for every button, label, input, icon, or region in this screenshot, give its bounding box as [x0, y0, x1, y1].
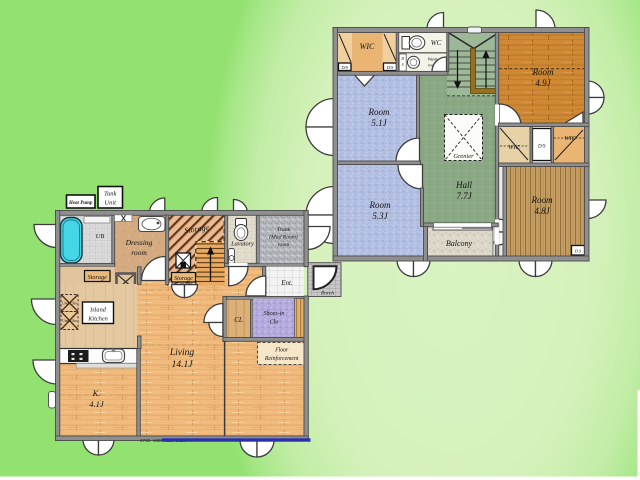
svg-text:4.1J: 4.1J [89, 399, 105, 409]
svg-text:14.1J: 14.1J [172, 360, 194, 370]
svg-text:Shoes-in: Shoes-in [264, 311, 285, 317]
svg-text:Reinforcement: Reinforcement [264, 355, 299, 362]
svg-text:Living: Living [169, 348, 195, 358]
svg-text:7.7J: 7.7J [456, 191, 472, 201]
svg-text:D: D [400, 57, 404, 61]
svg-text:D/S: D/S [537, 145, 546, 150]
svg-text:room: room [131, 248, 147, 257]
svg-text:5.1J: 5.1J [371, 118, 387, 128]
svg-text:Under Sto: Under Sto [62, 302, 77, 306]
svg-text:Room: Room [531, 195, 553, 205]
svg-text:Dressing: Dressing [125, 238, 153, 247]
svg-text:D/S: D/S [386, 65, 394, 70]
svg-text:D/S: D/S [340, 65, 348, 70]
svg-text:Porch: Porch [320, 291, 334, 297]
svg-text:Ent.: Ent. [280, 279, 293, 287]
svg-text:(Mud Room): (Mud Room) [269, 234, 298, 241]
svg-text:Storage: Storage [88, 274, 108, 281]
svg-text:UB: UB [96, 233, 105, 240]
svg-text:4.8J: 4.8J [534, 206, 550, 216]
svg-text:K.: K. [92, 388, 101, 398]
svg-text:D.S: D.S [574, 249, 582, 254]
svg-text:Under Sto: Under Sto [62, 319, 77, 323]
svg-text:Tank: Tank [104, 191, 117, 198]
svg-text:4.9J: 4.9J [535, 78, 551, 88]
svg-text:Kitchen: Kitchen [87, 316, 108, 323]
svg-text:5.3J: 5.3J [372, 211, 388, 221]
svg-text:WIC: WIC [360, 42, 375, 51]
svg-text:Balcony: Balcony [446, 239, 473, 248]
svg-text:Room: Room [369, 200, 391, 210]
svg-text:WIC: WIC [564, 135, 576, 142]
svg-text:Trunk: Trunk [277, 227, 291, 233]
svg-text:Clo: Clo [270, 320, 279, 326]
svg-text:Hall: Hall [455, 180, 473, 190]
svg-text:Grenier: Grenier [453, 153, 474, 160]
svg-text:Heat Pump: Heat Pump [68, 201, 93, 206]
svg-text:WC: WC [431, 39, 442, 47]
svg-text:S: S [402, 63, 404, 67]
svg-text:Room: Room [368, 107, 390, 117]
svg-text:Storage: Storage [174, 276, 193, 282]
svg-text:CL: CL [234, 316, 243, 324]
svg-text:Floor: Floor [274, 348, 289, 354]
svg-text:WIC: WIC [508, 144, 520, 151]
svg-text:room: room [278, 242, 290, 248]
svg-text:Island: Island [89, 307, 107, 314]
svg-text:Room: Room [532, 67, 554, 77]
svg-text:Lavatory: Lavatory [230, 241, 254, 248]
svg-text:Unit: Unit [104, 200, 116, 207]
